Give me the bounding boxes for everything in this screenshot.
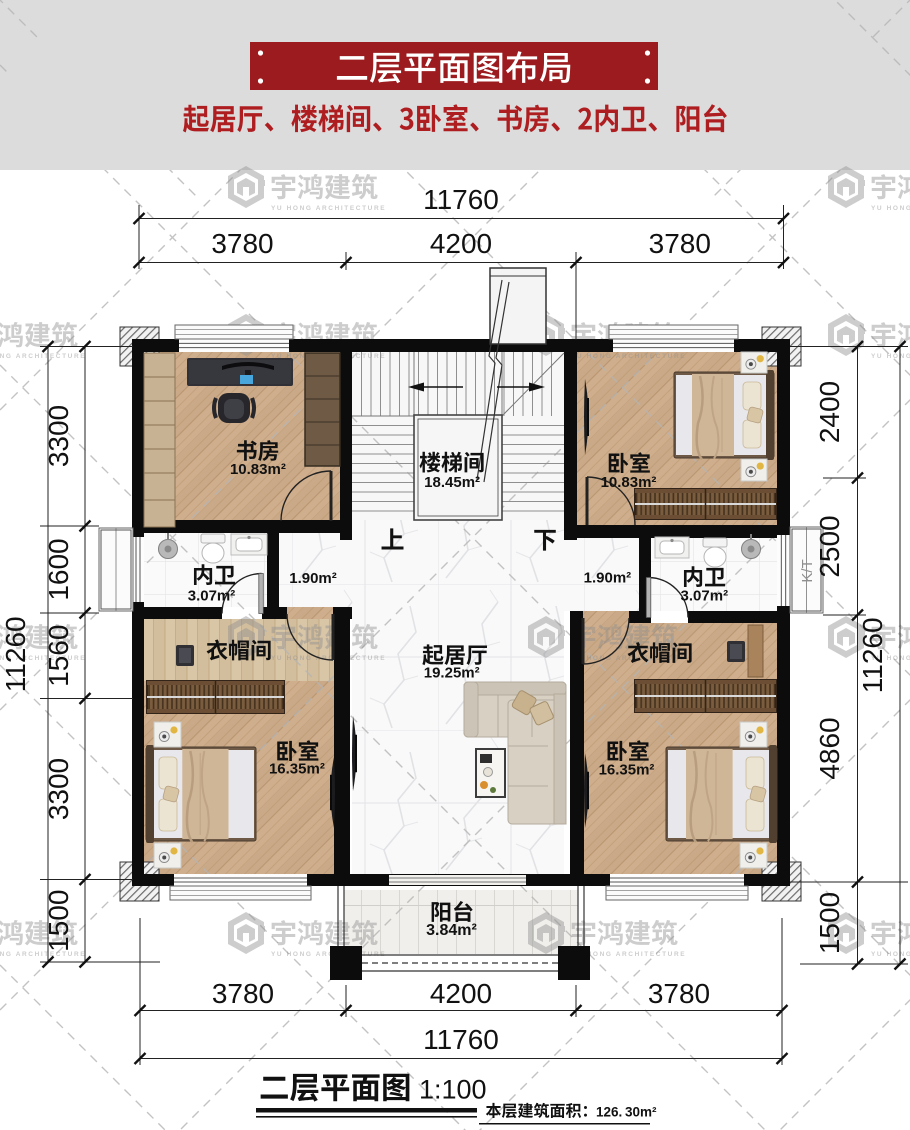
svg-text:1.90m²: 1.90m² [584,570,632,587]
svg-text:3300: 3300 [43,758,74,820]
svg-text:11760: 11760 [423,184,499,215]
svg-text:11260: 11260 [857,617,888,693]
svg-text:10.83m²: 10.83m² [601,474,657,491]
svg-text:3780: 3780 [211,228,273,259]
svg-text:2500: 2500 [814,515,845,577]
svg-text:3.07m²: 3.07m² [681,587,729,604]
svg-text:11760: 11760 [423,1024,499,1055]
svg-text:4860: 4860 [814,717,845,779]
svg-text:2400: 2400 [814,381,845,443]
svg-text:4200: 4200 [430,978,492,1009]
svg-text:4200: 4200 [430,228,492,259]
svg-text:16.35m²: 16.35m² [599,762,655,779]
svg-text:3300: 3300 [43,405,74,467]
svg-text:1560: 1560 [43,625,74,687]
svg-text:1500: 1500 [43,890,74,952]
svg-text:1.90m²: 1.90m² [289,570,337,587]
svg-text:3780: 3780 [212,978,274,1009]
svg-text:10.83m²: 10.83m² [230,461,286,478]
svg-text:16.35m²: 16.35m² [269,760,325,777]
svg-text:18.45m²: 18.45m² [424,474,480,491]
svg-text:19.25m²: 19.25m² [424,665,480,682]
svg-text:3.07m²: 3.07m² [188,587,236,604]
svg-text:1500: 1500 [814,892,845,954]
svg-text:3.84m²: 3.84m² [426,922,477,939]
svg-text:1600: 1600 [43,538,74,600]
svg-text:126. 30m²: 126. 30m² [596,1105,657,1120]
svg-text:3780: 3780 [649,228,711,259]
svg-text:11260: 11260 [0,616,31,692]
svg-text:3780: 3780 [648,978,710,1009]
svg-text:1:100: 1:100 [419,1075,487,1105]
